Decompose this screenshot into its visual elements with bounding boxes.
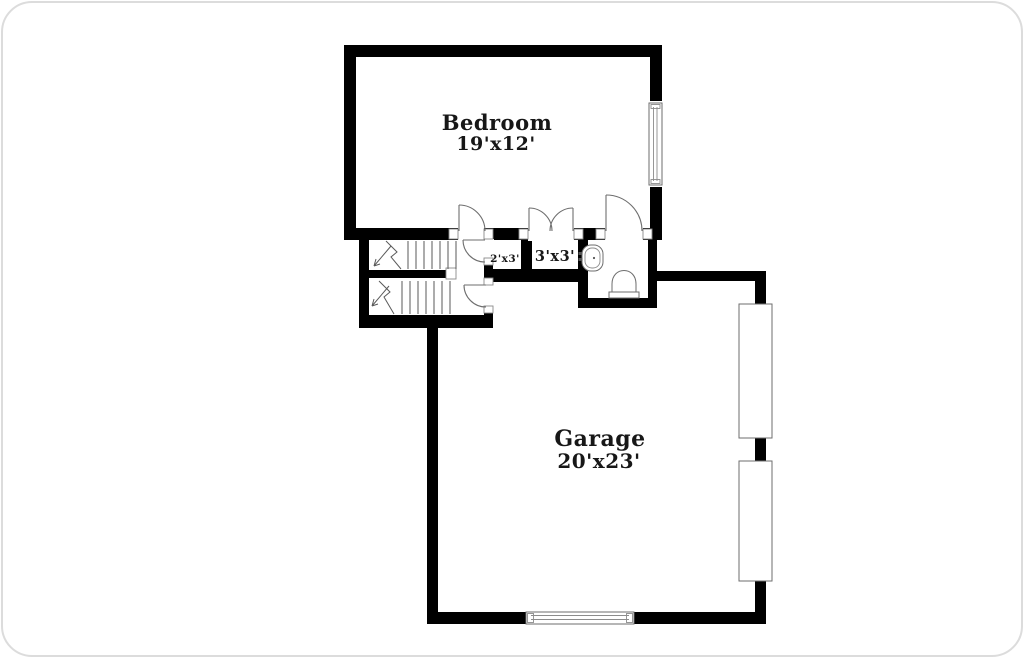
garage-dimensions: 20'x23' [557,449,640,473]
door-bedroom-to-bath [606,195,642,231]
bedroom-dimensions: 19'x12' [456,133,535,155]
stair-break-line [386,241,401,269]
floor-plan-drawing: Bedroom 19'x12' Garage 20'x23' 2'x3' 3'x… [0,0,1024,658]
stair-direction-arrow [372,286,389,306]
garage-door-panel-1 [739,304,772,438]
staircase-lower-flight [372,281,450,314]
bedroom-window [649,103,662,185]
garage-door-panel-2 [739,461,772,581]
image-frame [2,2,1022,656]
toilet-fixture [609,271,639,299]
floor-plan: Bedroom 19'x12' Garage 20'x23' 2'x3' 3'x… [0,0,1024,658]
stair-break-line [379,281,394,314]
walls [344,45,766,624]
door-small-closet [463,240,485,262]
stair-direction-arrow [374,246,391,266]
garage-window [526,612,634,624]
door-hall-to-garage [464,285,486,307]
staircase-upper-flight [374,241,456,269]
small-closet-dimensions: 2'x3' [490,253,520,265]
bedroom-label: Bedroom [442,110,553,135]
closet-dimensions: 3'x3' [535,248,575,265]
